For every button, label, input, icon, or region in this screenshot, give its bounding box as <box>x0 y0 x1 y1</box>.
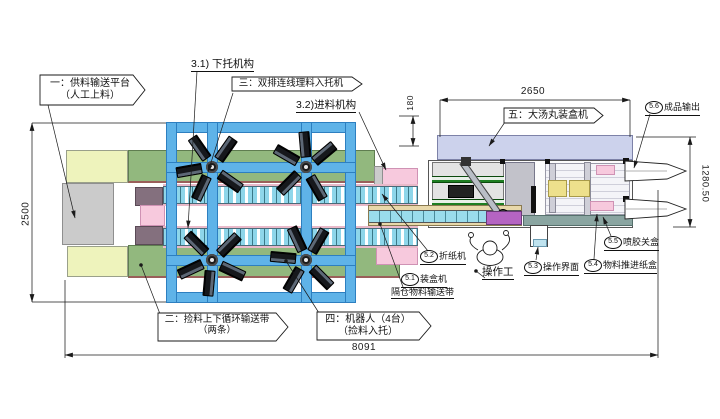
feed-block-bottom <box>135 226 163 245</box>
frame-bar-top <box>166 122 356 133</box>
folder-black-box <box>448 185 474 198</box>
label-infeed-mechanism: 3.2)进料机构 <box>296 99 356 113</box>
balloon-product-output: 5.6 成品输出 <box>645 101 700 116</box>
supply-platform-top <box>66 150 128 183</box>
balloon-compartment-conveyor-label: 隔仓物料输送带 <box>391 287 454 299</box>
cartoner-black-bar <box>531 186 536 213</box>
balloon-number: 5.5 <box>604 236 622 249</box>
callout-cartoner: 五：大汤丸装盒机 <box>506 110 590 122</box>
robot-hub <box>206 161 218 173</box>
balloon-number: 5.6 <box>645 101 663 114</box>
label-operator: 操作工 <box>482 266 514 280</box>
label-lower-tray-mechanism: 3.1) 下托机构 <box>191 58 254 72</box>
callout-robots: 四：机器人（4台） （捡料入托） <box>319 314 417 337</box>
balloon-number: 5.1 <box>401 273 419 286</box>
operator-interface-box <box>530 225 548 247</box>
balloon-number: 5.4 <box>584 259 602 272</box>
dim-cartoner-length: 2650 <box>515 86 551 98</box>
post-2 <box>545 159 550 164</box>
balloon-operator-interface: 5.3 操作界面 <box>524 261 579 276</box>
infeed-small-box <box>374 166 383 186</box>
pink-part-top <box>596 165 615 175</box>
post-3 <box>624 159 629 164</box>
pink-part-mid <box>590 201 614 211</box>
transfer-arm-base <box>461 157 471 166</box>
frame-bar-bottom <box>166 292 356 303</box>
balloon-glue-closer: 5.5 喷胶关盒 <box>604 236 659 251</box>
dim-left-height: 2500 <box>20 198 32 230</box>
yellow-block-2 <box>569 180 590 197</box>
operator-figure <box>469 231 510 266</box>
callout-tray-loader: 三：双排连线理料入托机 <box>234 79 348 90</box>
balloon-paper-folder: 5.2 折纸机 <box>420 250 466 265</box>
balloon-number: 5.2 <box>420 250 438 263</box>
robot-hub <box>300 254 312 266</box>
dim-total-length: 8091 <box>346 342 382 354</box>
dim-infeed-offset: 180 <box>406 90 416 116</box>
frame-bar-right <box>345 122 356 303</box>
supply-platform-center <box>62 183 114 245</box>
dim-cartoner-width: 1280.50 <box>699 162 710 204</box>
balloon-carton-pusher: 5.4 物料推进纸盒 <box>584 259 657 274</box>
balloon-cartoner-loader: 5.1 装盒机 <box>401 273 447 288</box>
feed-block-top <box>135 187 163 206</box>
frame-bar-left <box>166 122 177 303</box>
callout-supply-platform: 一：供料输送平台 （人工上料） <box>42 78 138 101</box>
feed-block-center <box>140 205 165 226</box>
robot-hub <box>300 161 312 173</box>
post-1 <box>500 159 505 164</box>
layout-drawing: 2500 180 2650 8091 1280.50 一：供料输送平台 （人工上… <box>0 0 720 419</box>
supply-platform-bottom <box>67 246 128 277</box>
robot-hub <box>206 254 218 266</box>
callout-circulating-belt: 二：捡料上下循环输送带 （两条） <box>160 315 274 337</box>
purple-pusher-block <box>486 211 522 225</box>
balloon-number: 5.3 <box>524 261 542 274</box>
yellow-block-1 <box>548 180 567 197</box>
